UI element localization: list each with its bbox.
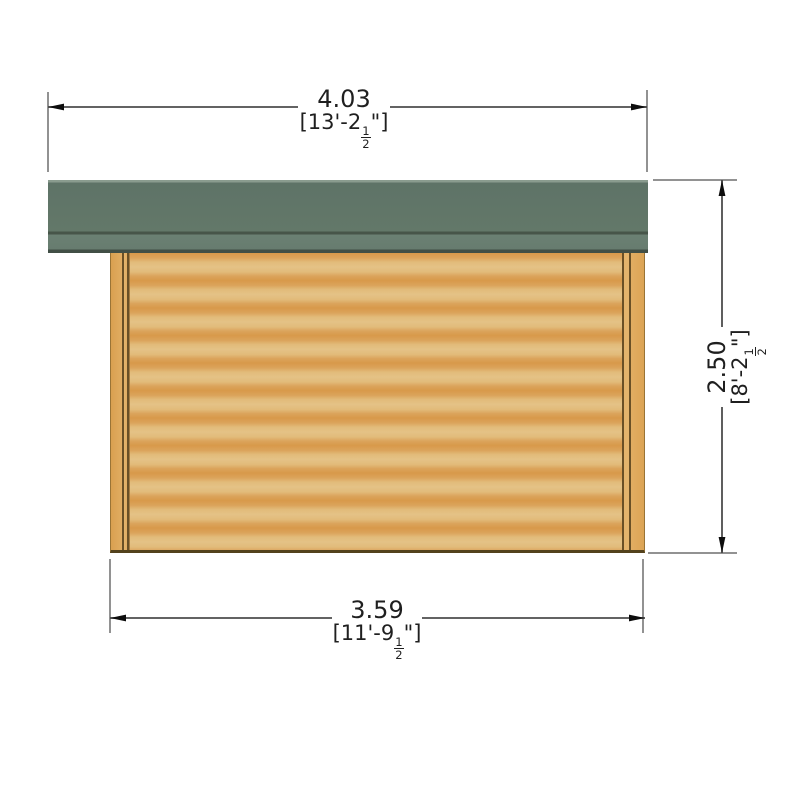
arrowhead-left-icon — [110, 615, 126, 622]
arrowhead-right-icon — [631, 104, 647, 111]
arrowhead-down-icon — [719, 537, 726, 553]
fraction-half: 12 — [361, 125, 370, 150]
top-width-dimension-label: 4.03 [13'-212"] — [264, 87, 424, 151]
right-height-metric-value: 2.50 — [705, 287, 729, 447]
fraction-half: 12 — [743, 347, 768, 356]
top-width-imperial-value: [13'-212"] — [264, 111, 424, 151]
elevation-diagram: 4.03 [13'-212"] 3.59 [11'-912"] 2.50 [8'… — [0, 0, 800, 800]
arrowhead-left-icon — [48, 104, 64, 111]
bottom-width-dimension-label: 3.59 [11'-912"] — [297, 598, 457, 662]
top-width-metric-value: 4.03 — [264, 87, 424, 111]
bottom-width-imperial-value: [11'-912"] — [297, 622, 457, 662]
right-height-imperial-value: [8'-212"] — [729, 287, 769, 447]
bottom-width-metric-value: 3.59 — [297, 598, 457, 622]
arrowhead-up-icon — [719, 180, 726, 196]
fraction-half: 12 — [394, 636, 403, 661]
right-height-dimension-label: 2.50 [8'-212"] — [705, 287, 751, 447]
